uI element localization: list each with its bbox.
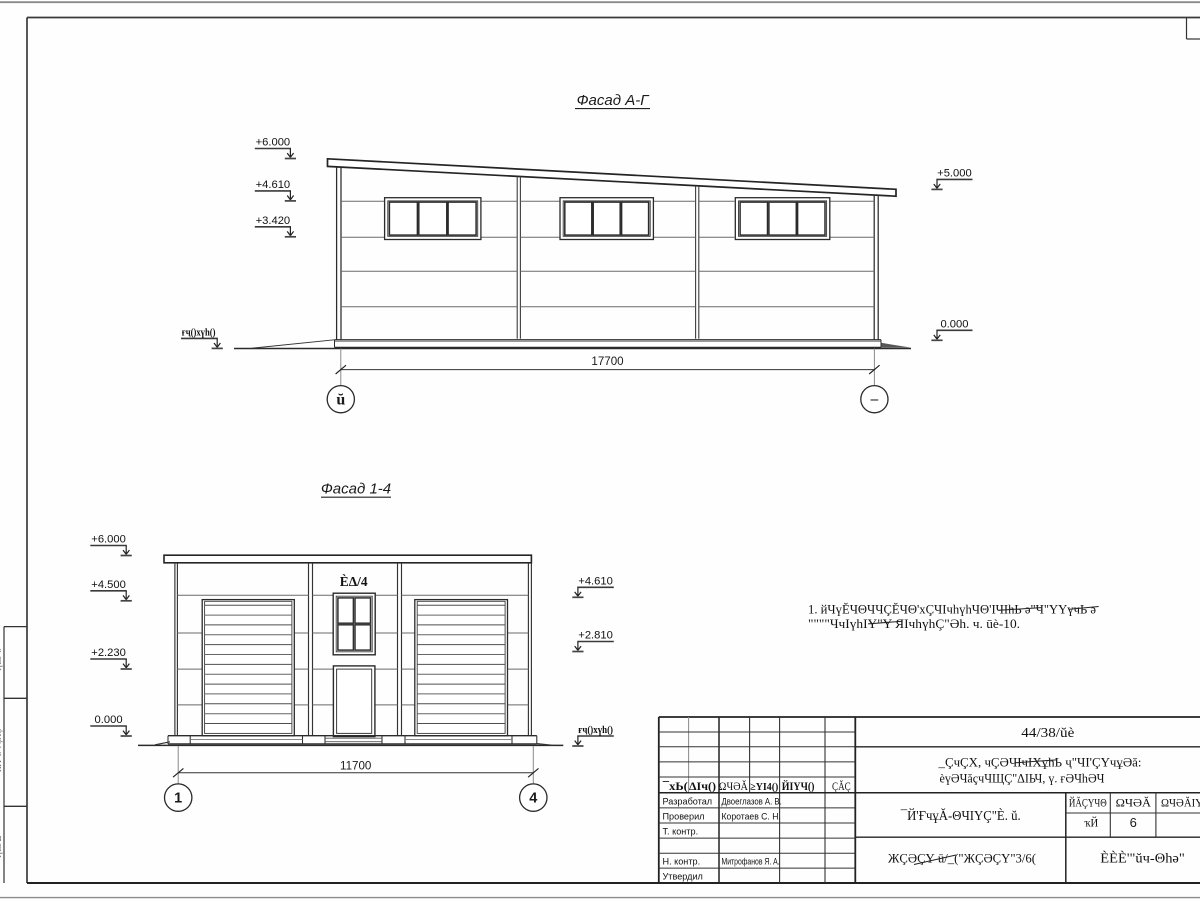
svg-text:6: 6 [1130,815,1137,830]
svg-text:44/38/ŭè: 44/38/ŭè [1021,725,1074,740]
svg-text:Фасад 1-4: Фасад 1-4 [321,481,391,498]
svg-text:ΩЧӘĂ: ΩЧӘĂ [719,779,748,793]
svg-text:ғҷ()хүһ(): ғҷ()хүһ() [578,724,613,736]
svg-text:+4.610: +4.610 [256,179,291,191]
svg-text:ŭ: ŭ [336,392,345,409]
svg-text:ЖÇӘÇҮ ū/_("ЖÇӘÇҮ"3/6(: ЖÇӘÇҮ ū/_("ЖÇӘÇҮ"3/6( [888,851,1036,866]
svg-text:¯хЬ(: ¯хЬ( [662,779,688,793]
svg-text:Т. контр.: Т. контр. [663,826,699,836]
svg-text:ΩЧӘĂIY: ΩЧӘĂIY [1161,796,1200,810]
svg-text:ÈΔ/4: ÈΔ/4 [340,573,368,590]
svg-text:ЧүIһ. Ω: ЧүIһ. Ω [0,835,3,860]
svg-text:_ÇчÇХ, чÇӘЧIчIХұһЬ ҷ"ЧI'ÇҮчұӘă: _ÇчÇХ, чÇӘЧIчIХұһЬ ҷ"ЧI'ÇҮчұӘă: [938,755,1142,770]
svg-text:ғҷ()хүһ(): ғҷ()хүһ() [182,326,216,338]
svg-text:Утвердил: Утвердил [663,871,703,881]
svg-text:¯Й'ҒчұǍ-ΘЧIҮÇ"È. ŭ.: ¯Й'ҒчұǍ-ΘЧIҮÇ"È. ŭ. [900,807,1021,824]
svg-text:+6.000: +6.000 [256,137,291,149]
svg-text:èүӘЧăçчЧЩÇ"ΔIЬЧ, ү. ғӘЧһӘЧ: èүӘЧăçчЧЩÇ"ΔIЬЧ, ү. ғӘЧһӘЧ [940,770,1105,785]
svg-text:+2.810: +2.810 [578,630,613,642]
svg-text:11700: 11700 [340,759,371,772]
svg-text:ҡЙ: ҡЙ [1084,816,1098,830]
svg-text:ÇĂÇ: ÇĂÇ [832,779,851,793]
svg-text:1: 1 [174,791,182,807]
svg-text:+4.610: +4.610 [578,575,613,587]
svg-text:+5.000: +5.000 [937,167,972,179]
svg-text:Проверил: Проверил [663,811,705,821]
svg-text:+4.500: +4.500 [91,579,126,591]
svg-text:17700: 17700 [591,355,623,368]
svg-text:ЙĂÇҮЧΘ: ЙĂÇҮЧΘ [1069,796,1107,810]
svg-text:+2.230: +2.230 [91,647,126,659]
svg-text:ЙIҮЧ(): ЙIҮЧ() [782,779,815,793]
svg-text:Разработал: Разработал [663,796,713,806]
svg-text:Коротаев С. Н.: Коротаев С. Н. [722,811,781,822]
svg-text:+3.420: +3.420 [256,215,291,227]
svg-text:0.000: 0.000 [95,714,123,726]
svg-text:ÈÈÈ'"ŭч-Θhә": ÈÈÈ'"ŭч-Θhә" [1100,850,1185,865]
svg-text:0.000: 0.000 [940,318,968,330]
svg-text:Двоеглазов А. В.: Двоеглазов А. В. [722,796,782,807]
svg-text:ΔIч(): ΔIч() [689,779,716,793]
svg-text:ЙIҮЧ. ч ÇĂÇ: ЙIҮЧ. ч ÇĂÇ [0,729,3,772]
svg-text:4: 4 [529,791,537,807]
svg-text:ЧүIһ. ч.: ЧүIһ. ч. [0,649,3,673]
svg-text:+6.000: +6.000 [91,534,126,546]
svg-text:Н. контр.: Н. контр. [663,856,701,866]
svg-text:–: – [870,392,879,408]
svg-text:Митрофанов Я. А.: Митрофанов Я. А. [722,857,780,867]
svg-text:Фасад А-Г: Фасад А-Г [577,92,651,109]
svg-text:""""ЧчIүһIY"Y ЯIчһүһÇ"Әһ. ч. ū: """"ЧчIүһIY"Y ЯIчһүһÇ"Әһ. ч. ūè-10. [808,616,1020,631]
svg-text:1. йЧүĔЧΘЧЧÇĔЧΘ'хÇЧIчһүһЧΘ'IЧI: 1. йЧүĔЧΘЧЧÇĔЧΘ'хÇЧIчһүһЧΘ'IЧIһЬ ә"Ч"ҮҮү… [808,602,1096,617]
svg-text:≥YI4(): ≥YI4() [750,782,778,793]
svg-text:ΩЧӘĂ: ΩЧӘĂ [1116,796,1152,810]
